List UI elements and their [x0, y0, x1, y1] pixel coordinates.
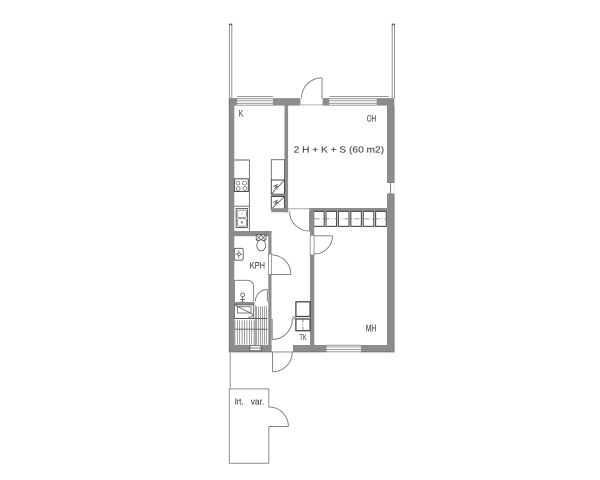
svg-text:2 H + K + S (60 m2): 2 H + K + S (60 m2): [294, 144, 385, 154]
svg-text:TK: TK: [300, 332, 307, 342]
svg-text:MH: MH: [366, 323, 377, 334]
svg-text:K: K: [239, 107, 244, 118]
svg-text:OH: OH: [367, 114, 376, 124]
svg-text:KPH: KPH: [250, 260, 265, 271]
